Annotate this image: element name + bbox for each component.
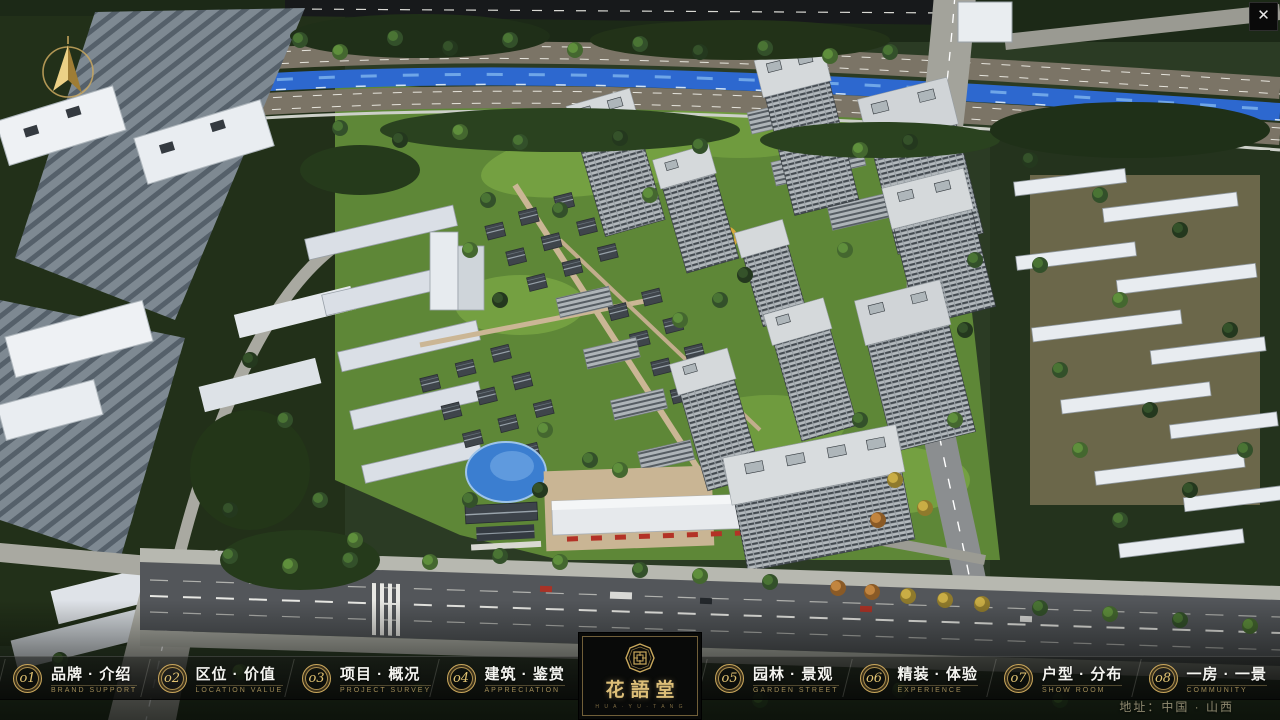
nav-zh-community: 一房 · 一景 (1187, 663, 1267, 684)
seal-emblem-icon (624, 642, 656, 674)
nav-label-interior: 精装 · 体验 EXPERIENCE (898, 663, 978, 694)
nav-group-left: o1 品牌 · 介绍 BRAND SUPPORT o2 区位 · 价值 LOCA… (0, 656, 578, 700)
north-arrow-dark (68, 45, 82, 93)
nav-en-community: COMMUNITY (1187, 685, 1267, 694)
nav-en-interior: EXPERIENCE (898, 685, 978, 694)
masterplan-render (0, 0, 1280, 720)
nav-item-interior[interactable]: o6 精装 · 体验 EXPERIENCE (847, 656, 992, 700)
nav-label-brand: 品牌 · 介绍 BRAND SUPPORT (51, 663, 137, 694)
project-address: 地址：中国 · 山西 (1119, 698, 1234, 715)
nav-badge-08: o8 (1149, 664, 1178, 693)
nav-zh-location: 区位 · 价值 (196, 663, 284, 684)
nav-badge-03: o3 (302, 664, 331, 693)
nav-label-community: 一房 · 一景 COMMUNITY (1187, 663, 1267, 694)
nav-badge-04: o4 (447, 664, 476, 693)
nav-zh-brand: 品牌 · 介绍 (51, 663, 137, 684)
nav-item-brand[interactable]: o1 品牌 · 介绍 BRAND SUPPORT (0, 656, 145, 700)
nav-zh-interior: 精装 · 体验 (898, 663, 978, 684)
compass-north-indicator (38, 36, 98, 102)
project-logo-frame: 花語堂 H U A · Y U · T A N G (582, 636, 698, 716)
nav-label-floorplan: 户型 · 分布 SHOW ROOM (1042, 663, 1122, 694)
nav-en-brand: BRAND SUPPORT (51, 685, 137, 694)
project-logo-title: 花語堂 (599, 675, 680, 702)
nav-badge-06: o6 (860, 664, 889, 693)
nav-en-architecture: APPRECIATION (485, 685, 565, 694)
nav-zh-garden: 园林 · 景观 (753, 663, 839, 684)
close-button[interactable]: ✕ (1249, 2, 1278, 31)
nav-en-garden: GARDEN STREET (753, 685, 839, 694)
north-arrow-light (53, 45, 68, 91)
nav-zh-architecture: 建筑 · 鉴赏 (485, 663, 565, 684)
nav-label-architecture: 建筑 · 鉴赏 APPRECIATION (485, 663, 565, 694)
context-rows-right (1007, 150, 1280, 570)
nav-en-location: LOCATION VALUE (196, 685, 284, 694)
nav-zh-floorplan: 户型 · 分布 (1042, 663, 1122, 684)
nav-item-community[interactable]: o8 一房 · 一景 COMMUNITY (1136, 656, 1280, 700)
nav-label-garden: 园林 · 景观 GARDEN STREET (753, 663, 839, 694)
masterplan-app: ✕ o1 品牌 · 介绍 BRAND SUPPORT o2 区位 · 价值 LO… (0, 0, 1280, 720)
nav-en-floorplan: SHOW ROOM (1042, 685, 1122, 694)
nav-item-location[interactable]: o2 区位 · 价值 LOCATION VALUE (145, 656, 290, 700)
nav-item-project[interactable]: o3 项目 · 概况 PROJECT SURVEY (289, 656, 434, 700)
nav-label-location: 区位 · 价值 LOCATION VALUE (196, 663, 284, 694)
nav-badge-02: o2 (158, 664, 187, 693)
nav-item-architecture[interactable]: o4 建筑 · 鉴赏 APPRECIATION (434, 656, 579, 700)
project-logo-subtitle: H U A · Y U · T A N G (595, 704, 684, 710)
project-logo-block: 花語堂 H U A · Y U · T A N G (578, 632, 702, 720)
nav-badge-07: o7 (1004, 664, 1033, 693)
nav-group-right: o5 园林 · 景观 GARDEN STREET o6 精装 · 体验 EXPE… (702, 656, 1280, 700)
nav-zh-project: 项目 · 概况 (340, 663, 431, 684)
nav-item-garden[interactable]: o5 园林 · 景观 GARDEN STREET (702, 656, 847, 700)
nav-item-floorplan[interactable]: o7 户型 · 分布 SHOW ROOM (991, 656, 1136, 700)
nav-badge-05: o5 (715, 664, 744, 693)
nav-label-project: 项目 · 概况 PROJECT SURVEY (340, 663, 431, 694)
nav-en-project: PROJECT SURVEY (340, 685, 431, 694)
nav-badge-01: o1 (13, 664, 42, 693)
